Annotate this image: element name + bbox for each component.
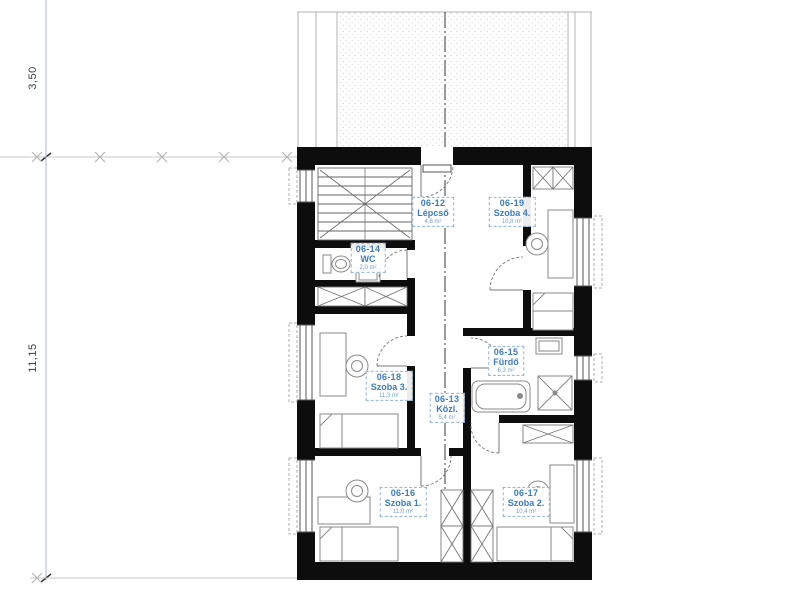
room-name: Fürdő (493, 358, 519, 368)
desk-szoba3 (320, 333, 346, 396)
room-name: Közl. (435, 405, 460, 415)
room-name: Szoba 3. (371, 383, 408, 393)
room-area: 5,4 m² (435, 415, 460, 422)
room-area: 10,4 m² (508, 509, 545, 516)
terrace-door (421, 147, 453, 197)
room-label-szoba2: 06-17 Szoba 2. 10,4 m² (503, 487, 550, 517)
floorplan-canvas: 06-12 Lépcső 4,8 m² 06-19 Szoba 4. 10,8 … (0, 0, 800, 600)
room-name: Szoba 4. (494, 209, 531, 219)
room-label-szoba4: 06-19 Szoba 4. 10,8 m² (489, 197, 536, 227)
door-szoba2 (471, 423, 499, 453)
bed-szoba3 (320, 414, 398, 448)
dimension-annotations (0, 0, 297, 583)
wardrobe-szoba4 (533, 167, 573, 189)
bathtub-icon (472, 381, 530, 412)
wardrobe-szoba2 (471, 490, 493, 562)
dimension-text-main: 11,15 (27, 343, 39, 372)
room-label-kozl: 06-13 Közl. 5,4 m² (430, 393, 465, 423)
room-label-lepcso: 06-12 Lépcső 4,8 m² (412, 197, 454, 227)
wardrobe-hall (318, 287, 407, 306)
door-szoba1 (421, 456, 451, 486)
wardrobe-szoba2-top (523, 425, 573, 443)
wardrobe-szoba1 (441, 490, 463, 562)
room-area: 4,8 m² (417, 219, 449, 226)
bed-szoba4 (533, 293, 573, 330)
shower-icon (538, 376, 572, 410)
dimension-text-top: 3,50 (27, 66, 39, 89)
door-szoba3 (377, 336, 407, 366)
right-wall-windows (574, 216, 602, 534)
room-name: Szoba 1. (385, 499, 422, 509)
desk-szoba2 (550, 465, 574, 523)
room-label-szoba1: 06-16 Szoba 1. 11,0 m² (380, 487, 427, 517)
room-label-wc: 06-14 WC 2,0 m² (351, 243, 386, 273)
room-area: 11,3 m² (371, 393, 408, 400)
stairs (318, 168, 412, 240)
room-area: 6,3 m² (493, 368, 519, 375)
room-area: 11,0 m² (385, 509, 422, 516)
room-name: Lépcső (417, 209, 449, 219)
toilet-icon (323, 255, 350, 273)
door-szoba4 (490, 257, 523, 290)
room-name: Szoba 2. (508, 499, 545, 509)
bed-szoba1 (320, 527, 398, 561)
desk-szoba4 (548, 210, 573, 278)
room-label-furdo: 06-15 Fürdő 6,3 m² (488, 346, 524, 376)
room-label-szoba3: 06-18 Szoba 3. 11,3 m² (366, 371, 413, 401)
room-name: WC (356, 255, 381, 265)
bed-szoba2 (497, 527, 573, 561)
room-area: 10,8 m² (494, 219, 531, 226)
room-area: 2,0 m² (356, 265, 381, 272)
bath-basin-icon (536, 338, 562, 354)
